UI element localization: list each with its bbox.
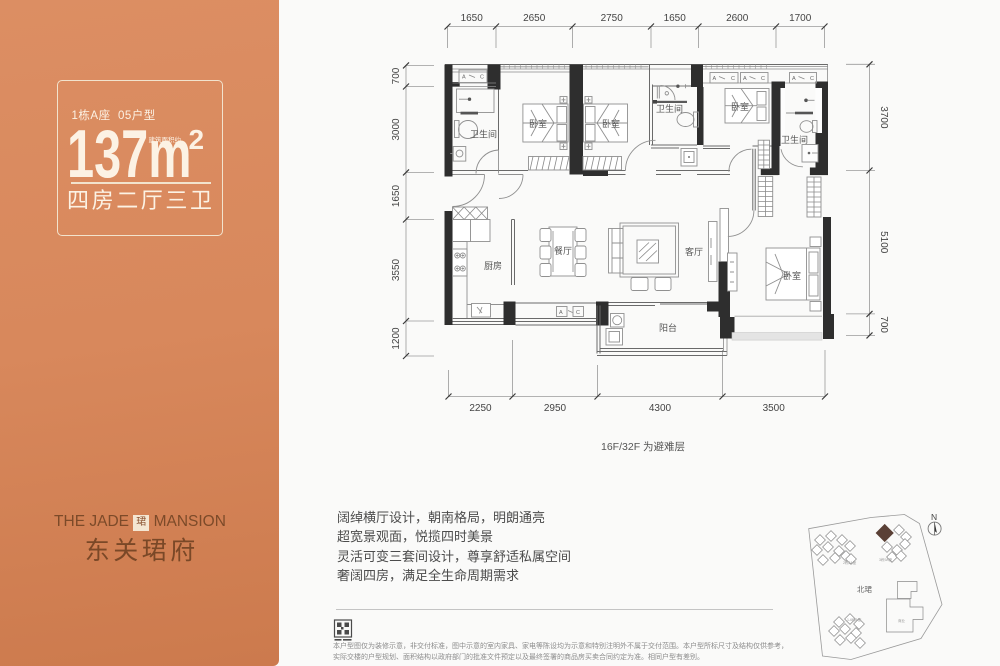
svg-text:C: C xyxy=(576,310,580,316)
svg-text:A: A xyxy=(559,310,563,316)
svg-text:C: C xyxy=(480,75,484,81)
svg-text:A: A xyxy=(462,75,466,81)
svg-text:卫生间: 卫生间 xyxy=(470,129,497,140)
svg-text:3000: 3000 xyxy=(391,118,402,141)
svg-text:卧室: 卧室 xyxy=(529,118,547,129)
svg-text:阳台: 阳台 xyxy=(659,322,677,333)
svg-text:客厅: 客厅 xyxy=(685,246,703,257)
svg-text:2600: 2600 xyxy=(726,13,749,24)
svg-text:2950: 2950 xyxy=(544,403,567,414)
svg-text:3500: 3500 xyxy=(763,403,786,414)
svg-text:3550: 3550 xyxy=(391,258,402,281)
svg-text:2栋8A座: 2栋8A座 xyxy=(843,560,857,565)
svg-text:卫生间: 卫生间 xyxy=(656,103,683,114)
svg-text:餐厅: 餐厅 xyxy=(554,245,572,256)
svg-text:700: 700 xyxy=(878,316,889,333)
svg-text:1650: 1650 xyxy=(391,184,402,207)
svg-text:1650: 1650 xyxy=(461,13,484,24)
svg-text:1700: 1700 xyxy=(789,13,812,24)
svg-text:3700: 3700 xyxy=(878,106,889,129)
svg-text:5100: 5100 xyxy=(878,231,889,254)
svg-text:1650: 1650 xyxy=(664,13,687,24)
svg-text:N: N xyxy=(931,512,937,522)
svg-text:卧室: 卧室 xyxy=(783,270,801,281)
svg-text:2650: 2650 xyxy=(523,13,546,24)
svg-text:C: C xyxy=(810,76,814,82)
svg-text:A: A xyxy=(792,76,796,82)
svg-text:A: A xyxy=(743,76,747,82)
svg-text:C: C xyxy=(761,76,765,82)
svg-text:卧室: 卧室 xyxy=(731,101,749,112)
svg-text:700: 700 xyxy=(391,67,402,84)
svg-text:A: A xyxy=(713,76,717,82)
svg-text:1200: 1200 xyxy=(391,327,402,350)
svg-text:卫生间: 卫生间 xyxy=(781,134,808,145)
svg-text:厨房: 厨房 xyxy=(484,260,502,271)
svg-text:3栋9A座: 3栋9A座 xyxy=(879,557,893,562)
svg-text:2250: 2250 xyxy=(469,403,492,414)
svg-text:北珺: 北珺 xyxy=(857,585,872,594)
svg-text:4300: 4300 xyxy=(649,403,672,414)
svg-text:卧室: 卧室 xyxy=(602,118,620,129)
svg-text:C: C xyxy=(731,76,735,82)
svg-text:1-6栋A座: 1-6栋A座 xyxy=(847,617,862,622)
svg-text:商业: 商业 xyxy=(898,618,906,623)
svg-text:2750: 2750 xyxy=(601,13,624,24)
